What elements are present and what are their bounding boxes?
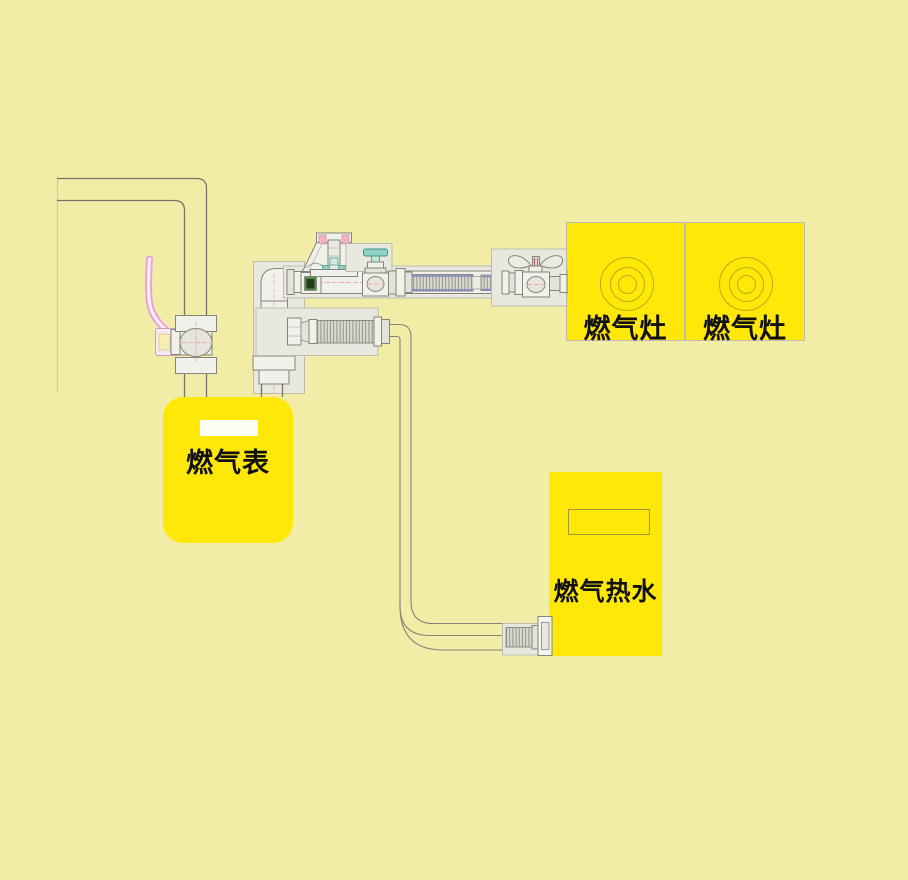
stove-valve <box>492 249 568 306</box>
burner-icon <box>618 275 637 294</box>
ball-valve-handle <box>149 259 169 333</box>
gas-stove-left: 燃气灶 <box>566 222 685 341</box>
main-pipe <box>284 266 568 298</box>
stove-flexible-hose <box>412 275 502 292</box>
branch-tee-and-hose <box>256 308 390 356</box>
meter-display-window <box>200 420 258 436</box>
heater-inlet-fitting <box>503 617 553 656</box>
heater-display-window <box>568 509 650 535</box>
heater-supply-pipe <box>390 325 506 651</box>
supply-pipe <box>57 179 207 398</box>
water-heater: 燃气热水 <box>549 472 662 656</box>
meter-outlet-riser <box>253 262 305 398</box>
gas-stove-right: 燃气灶 <box>685 222 805 341</box>
gas-stove-left-label: 燃气灶 <box>567 307 684 346</box>
gas-installation-diagram: 燃气表 燃气灶 燃气灶 燃气热水 <box>0 0 908 880</box>
shutoff-valve <box>346 244 392 297</box>
wing-handle <box>508 256 531 268</box>
pressure-regulator <box>303 233 366 277</box>
stove-inlet-stub <box>550 277 568 291</box>
gas-stove-right-label: 燃气灶 <box>686 307 804 346</box>
water-heater-label: 燃气热水 <box>549 572 662 608</box>
gas-meter: 燃气表 <box>163 397 293 543</box>
gas-meter-label: 燃气表 <box>163 441 293 480</box>
burner-icon <box>737 275 756 294</box>
gas-filter <box>301 273 321 294</box>
meter-flange <box>253 356 295 370</box>
hose-union <box>389 269 413 297</box>
piping-drawing <box>0 0 908 880</box>
ball-valve <box>149 259 217 374</box>
